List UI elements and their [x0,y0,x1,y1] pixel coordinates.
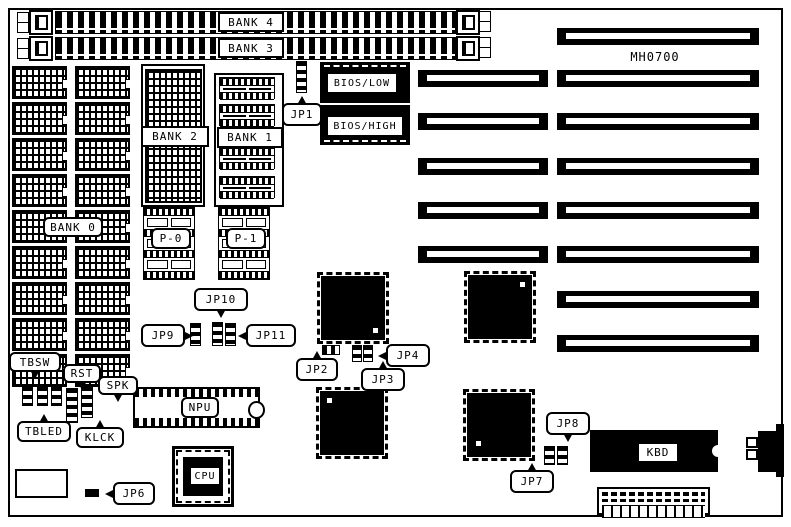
bank3-label: BANK 3 [218,38,284,58]
keyboard-din-connector [776,424,784,477]
isa-slot [557,246,759,263]
p0-label: P-0 [151,228,191,249]
crystal-oscillator [15,469,68,498]
dram-chip [12,318,67,351]
jp8-callout: JP8 [546,412,590,435]
jumper-jp8 [557,446,568,465]
dram-chip [75,246,130,279]
simm-clip [479,21,491,32]
jumper-jp7 [544,446,555,465]
jp2-callout: JP2 [296,358,338,381]
bank1-label: BANK 1 [217,127,283,148]
jp6-callout: JP6 [113,482,155,505]
isa-slot [557,335,759,352]
qfp-chip [320,391,384,455]
front-panel-header [51,386,62,406]
dram-chip [12,246,67,279]
isa-slot-ext [418,158,548,175]
isa-slot [557,291,759,308]
front-panel-header [81,386,93,418]
jumper-jp6 [85,489,99,497]
isa-slot-ext [418,70,548,87]
socket-chip [219,147,275,169]
kbd-label: KBD [637,442,679,463]
npu-label: NPU [181,397,219,418]
front-panel-header [66,388,78,423]
isa-slot [557,202,759,219]
tbsw-callout: TBSW [9,352,61,372]
cpu-label: CPU [189,466,221,486]
dram-chip [75,66,130,99]
dram-chip [12,138,67,171]
isa-slot-ext [418,246,548,263]
bank2-label: BANK 2 [141,126,209,147]
jp10-callout: JP10 [194,288,248,311]
dram-chip [75,138,130,171]
power-connector [597,487,710,515]
simm-latch-icon [29,10,53,35]
board-model-label: MH0700 [615,50,695,64]
tbled-callout: TBLED [17,421,71,442]
klck-callout: KLCK [76,427,124,448]
dram-chip [75,174,130,207]
jumper-jp3 [352,345,362,362]
din-pin [746,437,758,448]
isa-slot-ext [418,202,548,219]
simm-latch-icon [456,10,480,35]
jp9-callout: JP9 [141,324,185,347]
isa-slot [557,158,759,175]
jumper-jp11 [225,323,236,346]
dram-chip [75,318,130,351]
din-pin [746,449,758,460]
bank0-label: BANK 0 [43,217,103,237]
simm-clip [479,47,491,58]
bios-low-label: BIOS/LOW [326,72,398,94]
spk-callout: SPK [98,376,138,395]
jumper-jp4 [363,345,373,362]
front-panel-header [22,386,33,406]
simm-latch-icon [29,36,53,61]
jp3-callout: JP3 [361,368,405,391]
isa-slot [557,70,759,87]
dram-chip [75,282,130,315]
jumper-jp2 [322,345,340,355]
dram-chip [12,282,67,315]
dram-chip [75,102,130,135]
jp7-callout: JP7 [510,470,554,493]
jumper-jp1 [296,61,307,93]
jp4-callout: JP4 [386,344,430,367]
socket-chip [219,104,275,126]
motherboard-diagram: BANK 4 BANK 3 BANK 0 BANK 2 BANK 1 P-0 [0,0,791,527]
front-panel-header [37,386,48,406]
isa-slot-ext [418,113,548,130]
dram-chip [12,174,67,207]
dram-chip [12,66,67,99]
bios-high-label: BIOS/HIGH [326,115,404,137]
jp1-callout: JP1 [282,103,322,126]
rst-callout: RST [63,364,101,383]
qfp-chip [467,393,531,457]
simm-clip [17,48,29,59]
socket-chip [219,176,275,198]
isa-slot [557,28,759,45]
qfp-chip [468,275,532,339]
qfp-chip [321,276,385,340]
dram-chip [12,102,67,135]
bank4-label: BANK 4 [218,12,284,32]
p1-label: P-1 [226,228,266,249]
jumper-jp10 [212,322,223,346]
socket-chip [219,77,275,99]
simm-latch-icon [456,36,480,61]
simm-clip [17,22,29,33]
jp11-callout: JP11 [246,324,296,347]
isa-slot [557,113,759,130]
